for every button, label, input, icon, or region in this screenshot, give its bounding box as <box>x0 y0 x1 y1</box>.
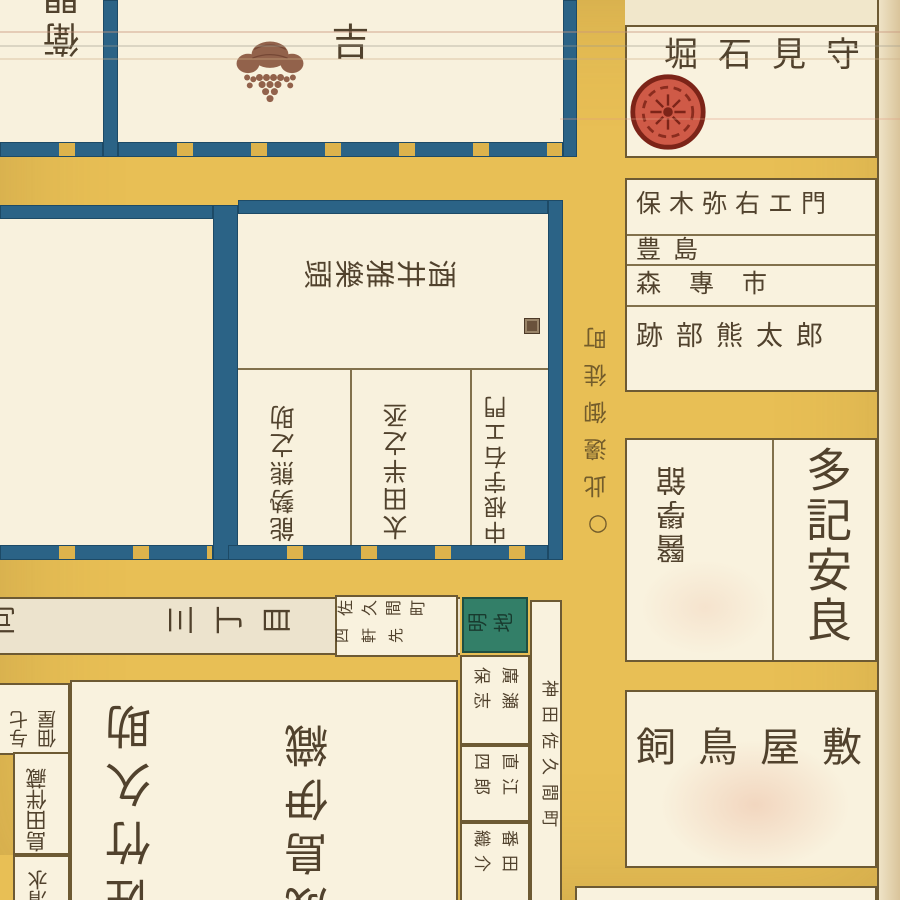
label-resident-hoki: 保木弥右エ門 <box>636 190 834 218</box>
road-wedge <box>0 855 13 900</box>
label-street-chome: 三丁目 <box>165 607 315 643</box>
label-resident-toyoshima: 豊島 <box>636 236 710 264</box>
label-resident-atobe: 跡部熊太郎 <box>636 322 836 352</box>
block-mid-left <box>0 219 213 545</box>
border-topleft-right <box>103 0 118 157</box>
border-topcenter-right <box>563 0 577 157</box>
label-smallplot-3a: 番田 <box>496 830 518 890</box>
label-smallplot-2b: 四郎 <box>468 753 490 813</box>
border-mid-shared-vertical <box>213 205 238 560</box>
top-margin-paper <box>625 0 877 25</box>
label-street-note: ○此邊御徒町 <box>586 298 620 538</box>
residents-divider-2 <box>627 264 875 266</box>
label-smallplot-2a: 直江 <box>496 753 518 813</box>
label-narushima: 成島伊織 <box>286 710 340 900</box>
label-plot-nakane: 中根宇右エ門 <box>486 368 532 544</box>
block-bottom-right-partial <box>575 886 877 900</box>
publisher-seal <box>524 318 540 334</box>
igakukan-divider <box>772 440 774 660</box>
label-igakukan: 醫學舘 <box>658 452 710 564</box>
map-canvas: 衛門 吉 堀石見守 酒井雅樂頭 能勢熊之助 太田半之丞 中根宇右エ門 ○此邊御徒… <box>0 0 900 900</box>
label-kichi: 吉 <box>326 22 368 78</box>
border-midcenter-bottom <box>228 545 548 560</box>
border-midleft-bottom <box>0 545 213 560</box>
label-sakuma-2: 四軒先 <box>334 628 444 650</box>
label-plot-ota: 太田半之丞 <box>383 372 429 540</box>
label-smallplot-1b: 保志 <box>468 667 490 727</box>
label-hori-iwaminokami: 堀石見守 <box>664 36 880 74</box>
label-kaitori-yashiki: 飼鳥屋敷 <box>636 726 884 771</box>
border-topcenter-bottom <box>118 142 563 157</box>
label-akichi: 明地 <box>467 613 523 637</box>
label-kanda-street: 神田佐久間町 <box>534 680 558 880</box>
label-box-a1: 佃屋 <box>38 688 64 748</box>
paulownia-crest <box>226 30 314 118</box>
border-midleft-top <box>0 205 213 219</box>
label-street-prev: 同 <box>0 607 65 643</box>
block-kaitori <box>625 690 877 868</box>
divider-midcenter-v2 <box>470 370 472 545</box>
label-box-b: 島田伴藏 <box>26 756 58 852</box>
label-taki-yasuyoshi: 多記安良 <box>793 446 851 658</box>
divider-midcenter-v1 <box>350 370 352 545</box>
label-sakuma-1: 佐久間町 <box>337 601 457 623</box>
label-box-a2: 与七 <box>10 688 36 748</box>
label-sakai-estate: 酒井雅樂頭 <box>297 248 457 288</box>
border-topleft-bottom <box>0 142 103 157</box>
label-smallplot-3b: 織介 <box>468 830 490 890</box>
plum-crest <box>628 72 708 152</box>
label-smallplot-1a: 廣瀬 <box>496 667 518 727</box>
label-box-c: 清水 <box>28 860 58 900</box>
label-satake: 佐竹久助 <box>106 694 162 900</box>
label-resident-mori: 森專市 <box>636 270 795 298</box>
label-partial-uemon: 衛門 <box>45 0 89 58</box>
residents-divider-3 <box>627 305 875 307</box>
border-midcenter-top <box>238 200 548 214</box>
border-midcenter-right <box>548 200 563 560</box>
label-plot-nose: 能勢熊之助 <box>270 372 316 542</box>
